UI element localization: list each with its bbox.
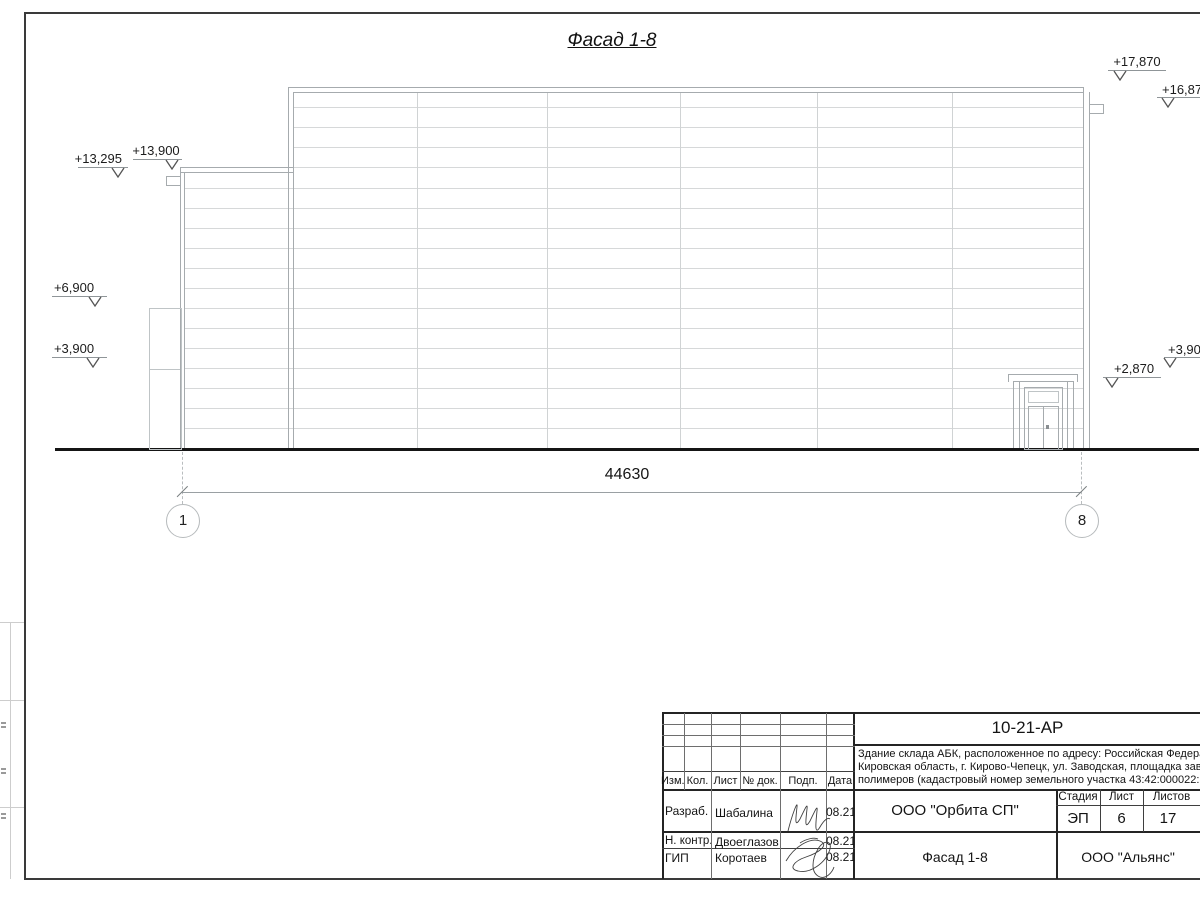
panel-joint [184,408,1083,409]
panel-joint [184,368,1083,369]
elevation-arrow-icon [86,357,100,368]
panel-joint [184,288,1083,289]
wall [1089,92,1090,448]
panel-joint [184,328,1083,329]
view-title: Фасад 1-8 [512,30,712,52]
tb-row-name: Двоеглазов [715,835,779,849]
tb-sheets-value: 17 [1143,810,1193,827]
door-portal [1013,381,1074,382]
roof-parapet [293,92,1083,93]
sheet-frame [24,878,1200,880]
titleblock-line [855,744,1200,746]
extension-line [182,452,183,504]
elevation-arrow-icon [1105,377,1119,388]
tb-stage-label: Стадия [1056,791,1100,803]
titleblock-line [662,712,1200,714]
panel-joint [293,127,1083,128]
door-transom-window [1028,391,1059,403]
tb-row-name: Шабалина [715,806,779,820]
panel-joint [952,93,953,448]
tb-sheet-value: 6 [1100,810,1143,827]
tb-sheets-label: Листов [1143,791,1200,803]
elevation-label: +2,870 [1105,361,1163,376]
margin-stamp-text [1,722,6,724]
sheet-frame [24,12,1200,14]
axis-bubble-8: 8 [1065,504,1099,538]
elevation-arrow-icon [1113,70,1127,81]
panel-joint [547,93,548,448]
titleblock-line [1056,805,1200,806]
tb-row-role: Н. контр. [665,835,711,847]
tb-header-podp: Подп. [780,775,826,787]
wall [288,87,289,448]
dimension-line [182,492,1081,493]
tb-description-line3: полимеров (кадастровый номер земельного … [858,774,1200,786]
panel-joint [817,93,818,448]
tb-row-name: Коротаев [715,851,779,865]
tb-header-izm: Изм. [661,775,684,787]
panel-joint [184,348,1083,349]
door-canopy [1008,374,1009,382]
panel-joint [184,248,1083,249]
panel-joint [184,208,1083,209]
door-portal [1073,381,1074,448]
drawing-sheet: Фасад 1-8 +13,295 +13,900 +17,870 +16,87… [0,0,1200,900]
margin-stamp-text [1,772,6,774]
elevation-arrow-icon [1163,357,1177,368]
panel-joint [184,188,1083,189]
titleblock-line [662,712,664,879]
panel-joint [184,388,1083,389]
tb-row-role: ГИП [665,851,711,865]
door-handle [1046,425,1049,429]
panel-joint [184,308,1083,309]
elevation-label: +17,870 [1108,54,1166,69]
elevation-arrow-icon [1161,97,1175,108]
panel-joint [293,167,1083,168]
tb-customer: ООО "Альянс" [1056,849,1200,865]
panel-joint [184,268,1083,269]
panel-joint [184,428,1083,429]
titleblock-line [662,831,1200,833]
margin-stamp-text [1,726,6,728]
elevation-label: +16,870 [1162,82,1200,97]
elevation-arrow-icon [111,167,125,178]
tb-sheet-label: Лист [1100,791,1143,803]
left-annex [149,308,182,450]
door-portal [1013,381,1014,448]
panel-joint [680,93,681,448]
tb-description-line2: Кировская область, г. Кирово-Чепецк, ул.… [858,761,1200,773]
door-mullion [1043,406,1044,448]
tb-header-data: Дата [826,775,854,787]
panel-joint [293,107,1083,108]
tb-description-line1: Здание склада АБК, расположенное по адре… [858,748,1200,760]
extension-line [1081,452,1082,504]
low-parapet [180,172,293,173]
signature-korotaev [780,833,836,881]
margin-stamp [0,622,24,623]
wall [293,92,294,448]
elevation-arrow-icon [88,296,102,307]
titleblock-line [711,790,712,879]
tb-row-role: Разраб. [665,804,711,818]
margin-stamp [0,807,24,808]
elevation-label: +13,900 [130,143,182,158]
tb-view-name: Фасад 1-8 [855,849,1055,865]
overall-dimension: 44630 [557,466,697,484]
door-portal [1067,381,1068,448]
tb-organization: ООО "Орбита СП" [855,802,1055,819]
roof-gutter [1089,104,1104,114]
margin-stamp-text [1,813,6,815]
roof-parapet [288,87,1083,88]
axis-bubble-1: 1 [166,504,200,538]
margin-stamp-text [1,817,6,819]
sheet-frame [24,12,26,880]
panel-joint [184,228,1083,229]
elevation-arrow-icon [165,159,179,170]
door-canopy [1008,374,1078,375]
tb-stage-value: ЭП [1056,810,1100,827]
tb-header-list: Лист [711,775,740,787]
margin-stamp [10,622,11,879]
door-portal [1019,381,1020,448]
elevation-label: +3,900 [50,341,98,356]
low-parapet [180,167,293,168]
tb-header-kol: Кол. [684,775,711,787]
parapet-protrusion [166,176,181,186]
door-canopy [1077,374,1078,382]
tb-doc-number: 10-21-АР [855,718,1200,738]
wall [1083,87,1084,448]
margin-stamp-text [1,768,6,770]
elevation-label: +6,900 [50,280,98,295]
panel-joint [417,93,418,448]
wall [184,172,185,448]
margin-stamp [0,700,24,701]
elevation-label: +3,900 [1168,342,1200,357]
elevation-label: +13,295 [70,151,122,166]
tb-header-doc: № док. [740,775,780,787]
panel-joint [293,147,1083,148]
